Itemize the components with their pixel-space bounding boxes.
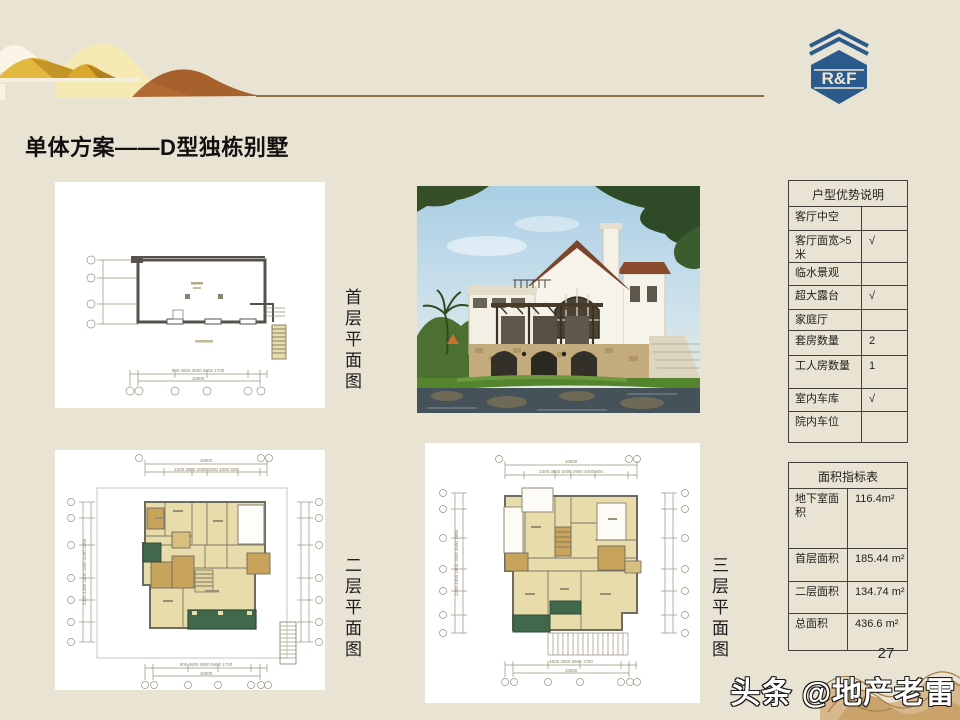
row-label: 院内车位	[789, 412, 861, 442]
plan2-top-dims: 2300 3800 2000 2900 4000 800	[174, 467, 238, 472]
row-label: 客厅中空	[789, 207, 861, 230]
row-value	[861, 412, 907, 442]
row-value: 2	[861, 331, 907, 355]
plan3-total-width: 15800	[565, 459, 578, 464]
floor-plan-first-panel: 900 4600 3600 5800 1700 15800	[55, 182, 325, 408]
plan2-total-width: 15800	[200, 458, 213, 463]
advantage-table-title: 户型优势说明	[789, 181, 907, 206]
table-row: 室内车库√	[789, 388, 907, 411]
table-row: 客厅面宽>5米√	[789, 230, 907, 262]
row-value	[861, 263, 907, 285]
plan1-bottom-dims: 900 4600 3600 5800 1700	[172, 368, 225, 373]
table-row: 客厅中空	[789, 206, 907, 230]
table-row: 院内车位	[789, 411, 907, 442]
table-row: 首层面积185.44 m²	[789, 548, 907, 581]
watermark: 头条 @地产老雷	[730, 668, 956, 712]
table-row: 家庭厅	[789, 309, 907, 330]
floor-plan-first-drawing: 900 4600 3600 5800 1700 15800	[55, 182, 325, 408]
villa-photo	[417, 186, 700, 413]
row-label: 临水景观	[789, 263, 861, 285]
floor-plan-second-drawing: 15800 2300 3800 2000 2900 4000 800 2300 …	[55, 450, 325, 690]
row-label: 二层面积	[789, 582, 847, 613]
table-row: 地下室面积116.4m²	[789, 488, 907, 548]
floor-plan-second-panel: 15800 2300 3800 2000 2900 4000 800 2300 …	[55, 450, 325, 690]
row-label: 家庭厅	[789, 310, 861, 330]
plan2-side-dims: 2300 4400 1800 1800 3500 1800	[82, 538, 87, 605]
advantage-table: 户型优势说明 客厅中空 客厅面宽>5米√ 临水景观 超大露台√ 家庭厅 套房数量…	[788, 180, 908, 443]
area-table: 面积指标表 地下室面积116.4m² 首层面积185.44 m² 二层面积134…	[788, 462, 908, 651]
row-label: 首层面积	[789, 549, 847, 581]
plan3-top-dims: 2300 3800 2000 2900 4000 800	[539, 469, 603, 474]
plan3-total-width-bottom: 15800	[565, 668, 578, 673]
row-label: 套房数量	[789, 331, 861, 355]
plan-label-first: 首层平面图	[339, 288, 364, 393]
area-table-title: 面积指标表	[789, 463, 907, 488]
plan2-bottom-dims: 900 4600 3600 5800 1700	[180, 662, 233, 667]
header-rule-line	[256, 95, 764, 97]
page-title: 单体方案——D型独栋别墅	[25, 130, 289, 162]
row-label: 超大露台	[789, 286, 861, 309]
table-row: 超大露台√	[789, 285, 907, 309]
plan1-total-width: 15800	[192, 376, 205, 381]
plan-label-third: 三层平面图	[706, 556, 731, 661]
header-hills-decoration	[0, 0, 300, 105]
row-value: √	[861, 286, 907, 309]
table-row: 套房数量2	[789, 330, 907, 355]
row-value: 185.44 m²	[847, 549, 907, 581]
row-value: 134.74 m²	[847, 582, 907, 613]
row-label: 室内车库	[789, 389, 861, 411]
row-value: 116.4m²	[847, 489, 907, 548]
table-row: 临水景观	[789, 262, 907, 285]
plan2-total-width-bottom: 15800	[200, 671, 213, 676]
row-value	[861, 310, 907, 330]
slide-background: R&F 单体方案——D型独栋别墅	[0, 0, 960, 720]
row-label: 工人房数量	[789, 356, 861, 388]
row-value: √	[861, 389, 907, 411]
plan3-bottom-dims: 4600 3600 5600 1700	[549, 659, 593, 664]
left-edge-decoration	[0, 84, 5, 100]
table-row: 二层面积134.74 m²	[789, 581, 907, 613]
row-value: 1	[861, 356, 907, 388]
row-value: √	[861, 231, 907, 262]
row-label: 客厅面宽>5米	[789, 231, 861, 262]
row-value	[861, 207, 907, 230]
plan3-side-dims: 2300 4400 1800 1800 3500 1800	[454, 529, 459, 596]
floor-plan-third-drawing: 15800 2300 3800 2000 2900 4000 800 2300 …	[425, 443, 700, 703]
plan-label-second: 二层平面图	[339, 556, 364, 661]
company-logo: R&F	[802, 28, 876, 108]
floor-plan-third-panel: 15800 2300 3800 2000 2900 4000 800 2300 …	[425, 443, 700, 703]
table-row: 工人房数量1	[789, 355, 907, 388]
logo-text: R&F	[822, 69, 857, 88]
row-label: 地下室面积	[789, 489, 847, 548]
